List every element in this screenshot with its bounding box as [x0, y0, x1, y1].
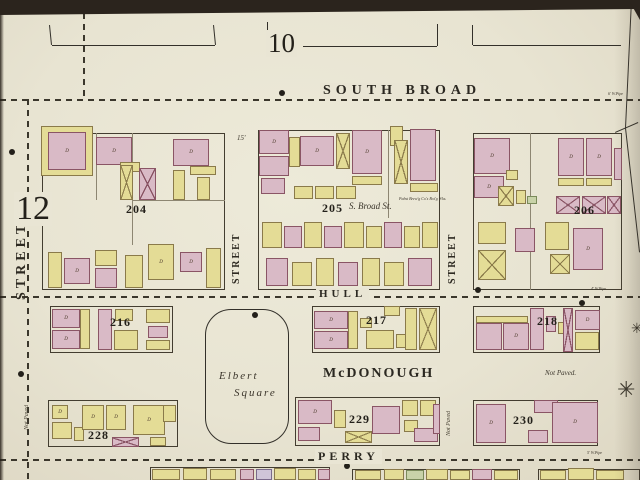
building: [404, 226, 420, 248]
building: [575, 332, 599, 350]
survey-dot: [18, 371, 24, 377]
building-label: D: [487, 185, 491, 190]
block-number: 229: [349, 412, 370, 427]
building: [419, 308, 437, 350]
lot-line: [530, 133, 531, 290]
building: D: [173, 139, 209, 166]
street-label-vertical: STREET: [447, 218, 463, 298]
building: [266, 258, 288, 286]
building-label: D: [586, 247, 590, 252]
building: [304, 222, 322, 248]
building-label: D: [159, 260, 163, 265]
building: [384, 262, 404, 286]
building: [114, 330, 138, 350]
block-number: 228: [88, 428, 109, 443]
building: [433, 404, 440, 434]
building-label: D: [315, 149, 319, 154]
building-label: D: [272, 140, 276, 145]
building: [336, 133, 350, 169]
building: [150, 437, 166, 446]
building: D: [314, 331, 348, 349]
building: [95, 268, 117, 288]
bracket-line: [52, 45, 215, 46]
building: D: [64, 258, 90, 284]
building: [362, 258, 380, 286]
building: D: [298, 400, 332, 424]
building: D: [474, 138, 510, 174]
building-label: D: [586, 318, 590, 323]
street-dash-line: [83, 13, 85, 99]
building: D: [573, 228, 603, 270]
building: D: [133, 405, 165, 435]
building: [52, 422, 72, 439]
building-label: D: [58, 410, 62, 415]
building: [568, 468, 594, 480]
elbert-square-label-line2: Square: [234, 387, 277, 399]
building: D: [148, 244, 174, 280]
building-label: D: [65, 149, 69, 154]
building: [366, 330, 394, 349]
building: [410, 129, 436, 181]
building-label: D: [329, 338, 333, 343]
bracket-line: [472, 25, 473, 45]
building: [315, 186, 334, 199]
building: [410, 183, 438, 192]
building: D: [52, 330, 80, 349]
building: [394, 140, 408, 184]
street-label: McDONOUGH: [320, 366, 437, 382]
block-number: 230: [513, 413, 534, 428]
building: [274, 468, 296, 480]
street-label: SOUTH BROAD: [320, 83, 484, 99]
building: [472, 469, 492, 480]
building: [558, 178, 584, 186]
street-label: HULL: [316, 288, 369, 300]
bracket-line: [213, 25, 216, 45]
building: [146, 340, 170, 350]
building: [163, 405, 176, 422]
building: [298, 427, 320, 441]
street-label-vertical: STREET: [231, 218, 247, 298]
building: D: [52, 405, 68, 419]
building: [316, 258, 334, 286]
building-label: D: [112, 149, 116, 154]
building: [563, 308, 573, 352]
block-number: 204: [126, 202, 147, 217]
building: [48, 252, 62, 288]
map-annotation: Not Paved.: [545, 369, 576, 377]
building-label: D: [64, 316, 68, 321]
building: [173, 170, 185, 200]
building: D: [503, 323, 529, 350]
building: [294, 186, 313, 199]
building-label: D: [313, 410, 317, 415]
building: [197, 177, 210, 200]
map-annotation-vertical: Not Paved: [446, 398, 456, 448]
bracket-line: [49, 25, 52, 45]
building: [426, 469, 448, 480]
building: [498, 186, 514, 206]
elbert-square-label-line1: Elbert: [219, 370, 259, 382]
building: [95, 250, 117, 266]
building: [402, 400, 418, 416]
building: [139, 168, 156, 200]
street-dash-line: [0, 99, 640, 101]
building-label: D: [75, 269, 79, 274]
building: [366, 226, 382, 248]
building: [284, 226, 302, 248]
building: [183, 468, 207, 480]
building: [478, 250, 506, 280]
building: [528, 430, 548, 443]
building: [545, 222, 569, 250]
building: D: [352, 130, 382, 174]
building: [406, 470, 424, 480]
building: D: [96, 137, 132, 165]
survey-dot: [279, 90, 285, 96]
sanborn-map-page: DDDDDDDDDDDDDDDDDDDDDDDDDDD✳✳SOUTH BROAD…: [0, 0, 640, 480]
map-annotation: 4' W.Pipe: [591, 286, 606, 291]
building: [206, 248, 221, 288]
building-label: D: [490, 154, 494, 159]
block-number: 206: [574, 203, 595, 218]
building-label: D: [329, 318, 333, 323]
building: [540, 470, 566, 480]
building: [344, 222, 364, 248]
building-label: D: [365, 150, 369, 155]
building: D: [180, 252, 202, 272]
adjacent-sheet-number: 10: [266, 30, 297, 57]
building: [148, 326, 168, 338]
survey-dot: [579, 300, 585, 306]
building: [506, 170, 518, 180]
building: [550, 254, 570, 274]
building: [334, 410, 346, 428]
building-label: D: [147, 418, 151, 423]
building: [120, 165, 133, 200]
building: [372, 406, 400, 434]
building: [318, 469, 330, 480]
map-annotation: Pabst Brew'g Co's Bot'g Wks.: [399, 196, 446, 201]
lot-line: [132, 200, 225, 201]
bracket-line: [437, 24, 438, 46]
building: [262, 222, 282, 248]
building-label: D: [91, 415, 95, 420]
building: [298, 469, 316, 480]
building: D: [300, 136, 334, 166]
building-label: D: [569, 155, 573, 160]
building: [352, 176, 382, 185]
building: [494, 470, 518, 480]
building: [336, 186, 356, 199]
building: [256, 469, 272, 480]
building: [259, 156, 289, 176]
building: [450, 470, 470, 480]
building: [112, 437, 139, 447]
building-label: D: [514, 334, 518, 339]
building: [338, 262, 358, 286]
building: [240, 469, 254, 480]
block-number: 216: [110, 315, 131, 330]
building: [586, 178, 612, 186]
building: [384, 469, 404, 480]
building: [345, 431, 372, 443]
block-number: 217: [366, 313, 387, 328]
building: [125, 255, 143, 288]
building: D: [558, 138, 584, 176]
map-annotation: 15': [237, 134, 246, 142]
building-label: D: [597, 155, 601, 160]
building: [355, 470, 381, 480]
page-fold-shading: [614, 0, 640, 480]
survey-dot: [9, 149, 15, 155]
building: [292, 262, 312, 286]
building-label: D: [489, 421, 493, 426]
building-label: D: [114, 415, 118, 420]
survey-dot: [475, 287, 481, 293]
street-label: PERRY: [315, 449, 382, 464]
building: [261, 178, 285, 194]
building: D: [48, 132, 86, 170]
building: [405, 308, 417, 350]
building: [80, 309, 90, 349]
bracket-line: [303, 46, 437, 47]
building: [384, 222, 402, 248]
map-annotation-vertical: Not Paved: [24, 392, 34, 442]
building: [422, 222, 438, 248]
building: [527, 196, 537, 204]
corner-street-number: 12: [14, 192, 52, 226]
building-label: D: [573, 420, 577, 425]
building: [146, 309, 170, 323]
building: D: [552, 402, 598, 443]
elbert-square-outline: Elbert Square: [205, 309, 289, 444]
bracket-line: [473, 45, 621, 46]
building: [210, 469, 236, 480]
map-annotation: S. Broad St.: [349, 201, 392, 211]
building: [515, 228, 535, 252]
building: D: [106, 405, 126, 430]
building-label: D: [189, 150, 193, 155]
building: [478, 222, 506, 244]
building: [348, 311, 358, 349]
building: [324, 226, 342, 248]
building: [476, 316, 528, 323]
building: D: [476, 404, 506, 443]
survey-dot: [252, 312, 258, 318]
building: D: [52, 309, 80, 328]
building-label: D: [64, 337, 68, 342]
building: D: [314, 311, 348, 329]
book-edge-left: [0, 0, 4, 480]
block-number: 205: [322, 201, 343, 216]
building: D: [586, 138, 612, 176]
building: D: [259, 130, 289, 154]
building: [289, 137, 300, 167]
building: [516, 190, 526, 204]
building: [408, 258, 432, 286]
block-number: 218: [537, 314, 558, 329]
building: [152, 469, 180, 480]
map-annotation: 5' W.Pipe: [587, 450, 602, 455]
building: [476, 323, 502, 350]
building: D: [82, 405, 104, 430]
book-edge-top: [0, 0, 640, 16]
building-label: D: [189, 260, 193, 265]
building: [190, 166, 216, 175]
building: D: [575, 310, 600, 330]
